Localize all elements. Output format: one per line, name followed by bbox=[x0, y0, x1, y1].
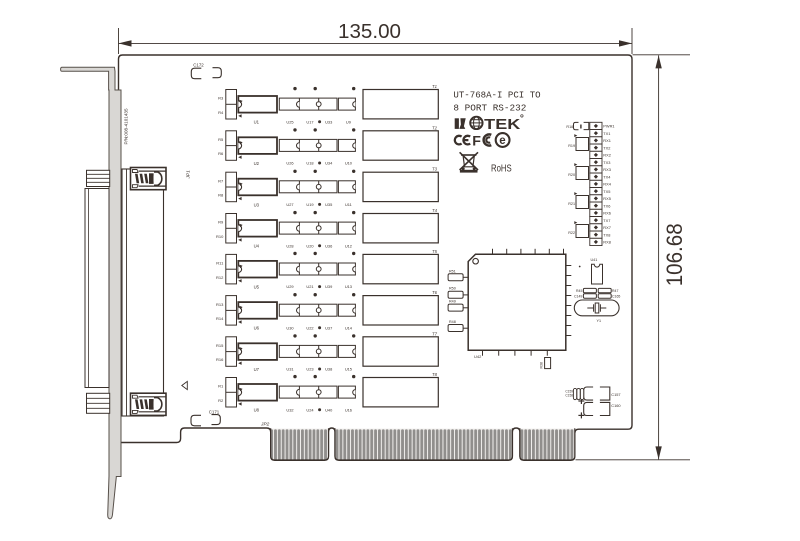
svg-text:RX7: RX7 bbox=[603, 225, 611, 230]
svg-text:TX6: TX6 bbox=[603, 203, 610, 208]
svg-text:U34: U34 bbox=[325, 161, 333, 166]
svg-text:TX4: TX4 bbox=[603, 174, 611, 179]
svg-text:U23: U23 bbox=[306, 367, 313, 372]
svg-text:e: e bbox=[499, 135, 505, 147]
svg-text:R18: R18 bbox=[566, 125, 573, 129]
svg-text:T1: T1 bbox=[432, 84, 437, 89]
svg-text:135.00: 135.00 bbox=[338, 21, 401, 43]
svg-text:T5: T5 bbox=[432, 249, 438, 254]
svg-text:U40: U40 bbox=[325, 407, 333, 412]
svg-text:U15: U15 bbox=[345, 367, 352, 372]
svg-text:R16: R16 bbox=[216, 357, 224, 362]
svg-text:RX5: RX5 bbox=[603, 196, 611, 201]
svg-text:RoHS: RoHS bbox=[491, 163, 512, 174]
svg-text:106.68: 106.68 bbox=[662, 223, 687, 286]
svg-text:T7: T7 bbox=[432, 331, 438, 336]
svg-text:RX6: RX6 bbox=[603, 211, 611, 216]
svg-text:U8: U8 bbox=[254, 408, 260, 413]
svg-text:R48: R48 bbox=[449, 320, 456, 324]
svg-text:TX8: TX8 bbox=[603, 232, 610, 237]
svg-text:R38: R38 bbox=[540, 362, 544, 368]
svg-text:R11: R11 bbox=[216, 261, 224, 266]
svg-text:U42: U42 bbox=[474, 354, 482, 359]
svg-text:8 PORT RS-232: 8 PORT RS-232 bbox=[453, 102, 526, 113]
svg-text:UT-768A-I PCI TO: UT-768A-I PCI TO bbox=[453, 90, 541, 101]
svg-text:JP2: JP2 bbox=[260, 421, 270, 427]
svg-text:R19: R19 bbox=[568, 144, 575, 148]
svg-text:C171: C171 bbox=[209, 409, 220, 414]
svg-text:U7: U7 bbox=[254, 367, 260, 372]
svg-text:R4: R4 bbox=[218, 110, 224, 115]
svg-text:U5: U5 bbox=[254, 285, 260, 290]
svg-text:U10: U10 bbox=[345, 161, 353, 166]
svg-text:C160: C160 bbox=[611, 403, 621, 408]
svg-text:U13: U13 bbox=[345, 284, 352, 289]
svg-text:U14: U14 bbox=[345, 325, 353, 330]
svg-text:U12: U12 bbox=[345, 243, 352, 248]
svg-text:U9: U9 bbox=[346, 119, 351, 124]
svg-text:U2: U2 bbox=[254, 161, 260, 166]
svg-text:PWR1: PWR1 bbox=[603, 124, 614, 129]
svg-text:U27: U27 bbox=[286, 202, 293, 207]
svg-text:P/N:008-4101435: P/N:008-4101435 bbox=[123, 108, 128, 144]
svg-text:RX2: RX2 bbox=[603, 153, 611, 158]
svg-text:R5: R5 bbox=[218, 137, 224, 142]
svg-text:C158: C158 bbox=[565, 394, 573, 398]
svg-text:U31: U31 bbox=[286, 367, 293, 372]
svg-text:U38: U38 bbox=[325, 367, 332, 372]
svg-text:U33: U33 bbox=[325, 119, 332, 124]
svg-text:TX5: TX5 bbox=[603, 189, 610, 194]
svg-text:C149: C149 bbox=[574, 294, 582, 298]
svg-text:U36: U36 bbox=[325, 243, 332, 248]
svg-text:T2: T2 bbox=[432, 125, 438, 130]
svg-text:TX7: TX7 bbox=[603, 218, 610, 223]
svg-text:R10: R10 bbox=[216, 234, 224, 239]
svg-text:U17: U17 bbox=[306, 119, 313, 124]
svg-text:R51: R51 bbox=[449, 269, 456, 273]
svg-text:U1: U1 bbox=[254, 120, 260, 125]
svg-text:F: F bbox=[472, 133, 481, 149]
svg-text:Y1: Y1 bbox=[597, 319, 602, 323]
svg-text:R8: R8 bbox=[218, 193, 224, 198]
svg-text:U39: U39 bbox=[325, 284, 332, 289]
svg-text:U24: U24 bbox=[306, 407, 314, 412]
svg-text:RX4: RX4 bbox=[603, 182, 611, 187]
svg-text:R1: R1 bbox=[218, 384, 224, 389]
svg-text:T3: T3 bbox=[432, 167, 438, 172]
svg-text:U25: U25 bbox=[286, 119, 293, 124]
svg-text:R20: R20 bbox=[568, 173, 575, 177]
svg-text:U30: U30 bbox=[286, 325, 294, 330]
svg-text:C157: C157 bbox=[611, 392, 620, 397]
svg-text:R45: R45 bbox=[576, 289, 582, 293]
svg-text:U22: U22 bbox=[306, 325, 313, 330]
svg-text:RX8: RX8 bbox=[603, 240, 611, 245]
svg-text:R15: R15 bbox=[216, 343, 224, 348]
svg-text:R12: R12 bbox=[216, 275, 224, 280]
svg-text:U32: U32 bbox=[286, 407, 293, 412]
svg-text:U35: U35 bbox=[325, 202, 332, 207]
svg-text:U16: U16 bbox=[345, 407, 352, 412]
svg-text:R14: R14 bbox=[216, 316, 224, 321]
svg-text:U41: U41 bbox=[591, 258, 598, 262]
svg-text:U6: U6 bbox=[254, 326, 260, 331]
svg-text:C165: C165 bbox=[612, 294, 620, 298]
svg-text:R7: R7 bbox=[218, 178, 224, 183]
svg-text:TX1: TX1 bbox=[603, 131, 610, 136]
svg-text:U19: U19 bbox=[306, 202, 313, 207]
svg-text:R9: R9 bbox=[218, 220, 224, 225]
svg-text:R22: R22 bbox=[568, 231, 575, 235]
svg-text:JP1: JP1 bbox=[186, 170, 192, 180]
svg-text:R50: R50 bbox=[449, 287, 456, 291]
svg-text:TX2: TX2 bbox=[603, 145, 610, 150]
svg-text:RX1: RX1 bbox=[603, 138, 611, 143]
svg-text:U21: U21 bbox=[306, 284, 313, 289]
svg-text:RX3: RX3 bbox=[603, 167, 611, 172]
svg-text:U37: U37 bbox=[325, 325, 332, 330]
svg-text:R49: R49 bbox=[449, 300, 456, 304]
svg-text:R3: R3 bbox=[218, 96, 224, 101]
svg-text:U28: U28 bbox=[286, 243, 293, 248]
svg-text:U11: U11 bbox=[345, 202, 352, 207]
svg-text:R47: R47 bbox=[612, 289, 618, 293]
svg-text:T4: T4 bbox=[432, 208, 438, 213]
svg-text:U20: U20 bbox=[306, 243, 314, 248]
svg-text:R6: R6 bbox=[218, 151, 224, 156]
svg-text:R21: R21 bbox=[568, 202, 575, 206]
svg-text:TX3: TX3 bbox=[603, 160, 610, 165]
svg-text:U26: U26 bbox=[286, 161, 293, 166]
svg-text:U18: U18 bbox=[306, 161, 313, 166]
svg-text:R13: R13 bbox=[216, 302, 224, 307]
svg-text:T8: T8 bbox=[432, 372, 438, 377]
svg-text:U29: U29 bbox=[286, 284, 293, 289]
svg-text:R2: R2 bbox=[218, 398, 224, 403]
svg-text:C172: C172 bbox=[193, 62, 204, 67]
svg-text:U4: U4 bbox=[254, 244, 260, 249]
svg-text:U3: U3 bbox=[254, 202, 260, 207]
svg-text:T6: T6 bbox=[432, 290, 438, 295]
svg-text:TEK: TEK bbox=[484, 117, 520, 133]
